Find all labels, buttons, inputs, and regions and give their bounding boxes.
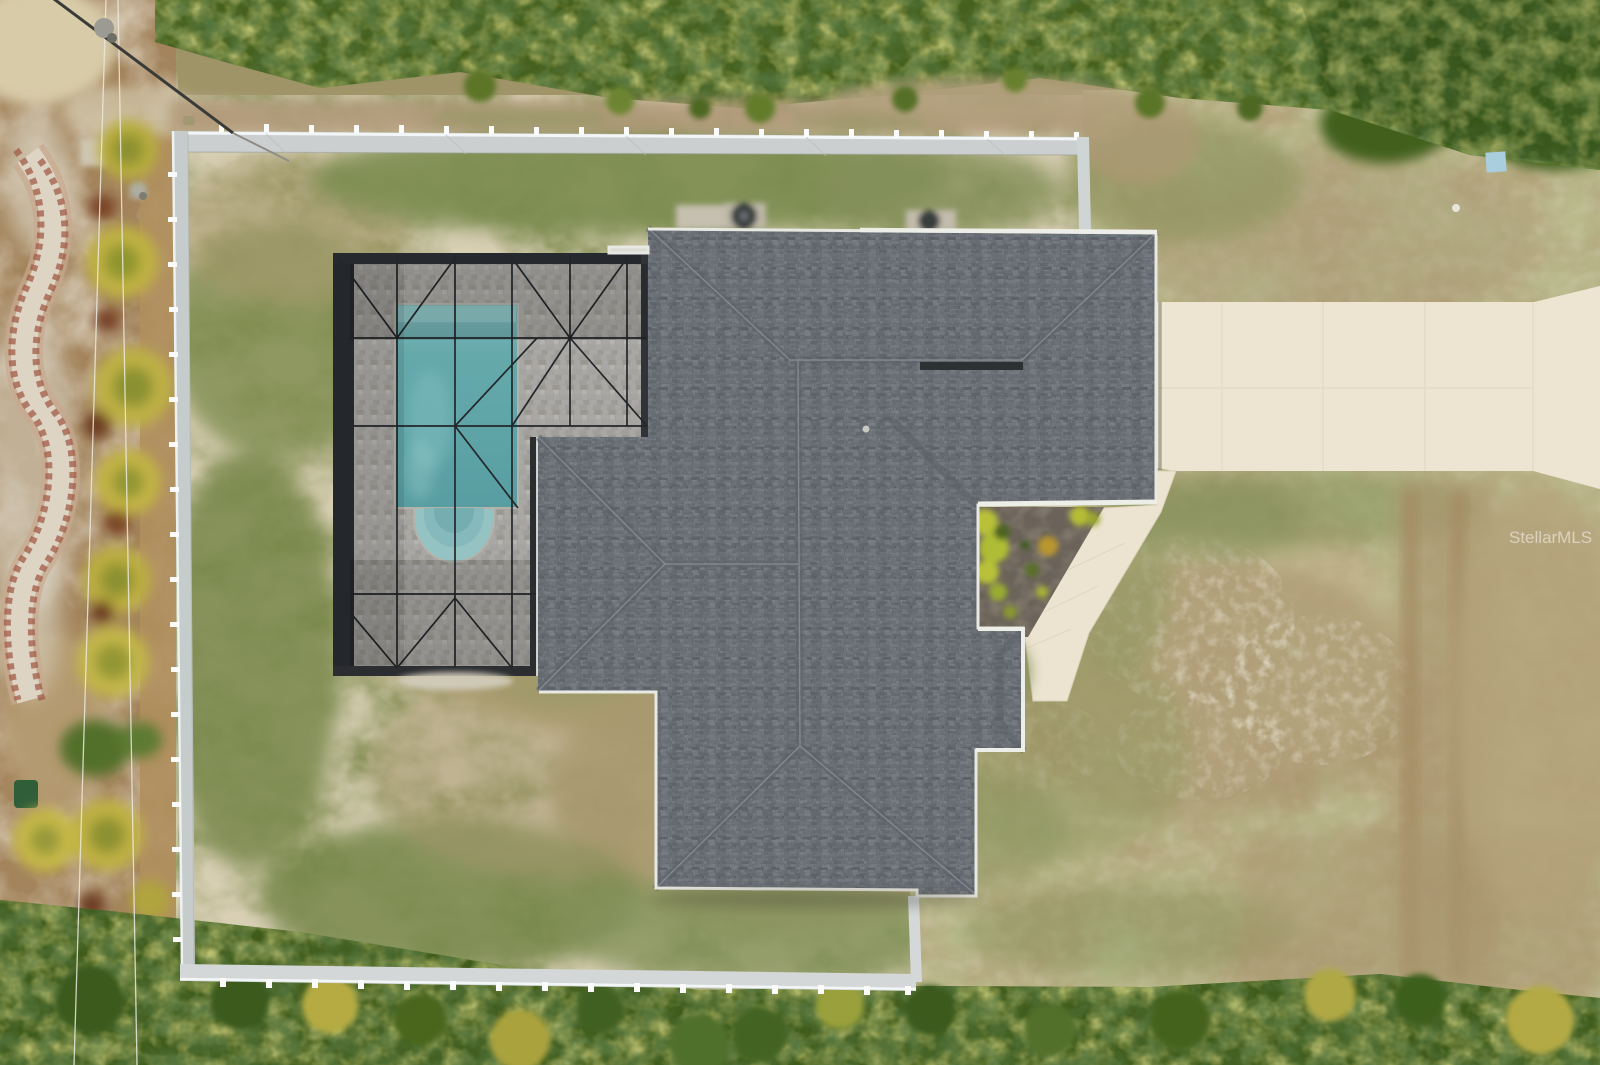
svg-text:StellarMLS: StellarMLS	[1509, 528, 1592, 547]
